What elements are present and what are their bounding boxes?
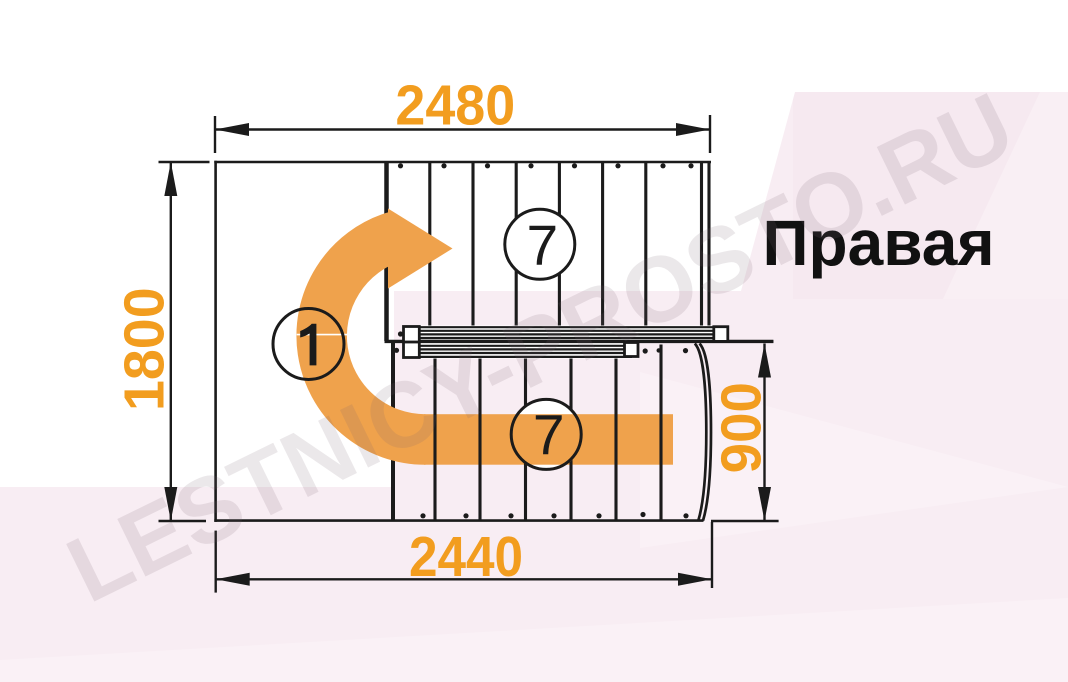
svg-text:7: 7	[533, 404, 565, 468]
svg-text:7: 7	[526, 214, 558, 278]
svg-text:900: 900	[708, 382, 772, 473]
svg-text:2480: 2480	[395, 73, 515, 137]
svg-text:2440: 2440	[409, 526, 523, 589]
svg-text:1800: 1800	[112, 287, 176, 411]
